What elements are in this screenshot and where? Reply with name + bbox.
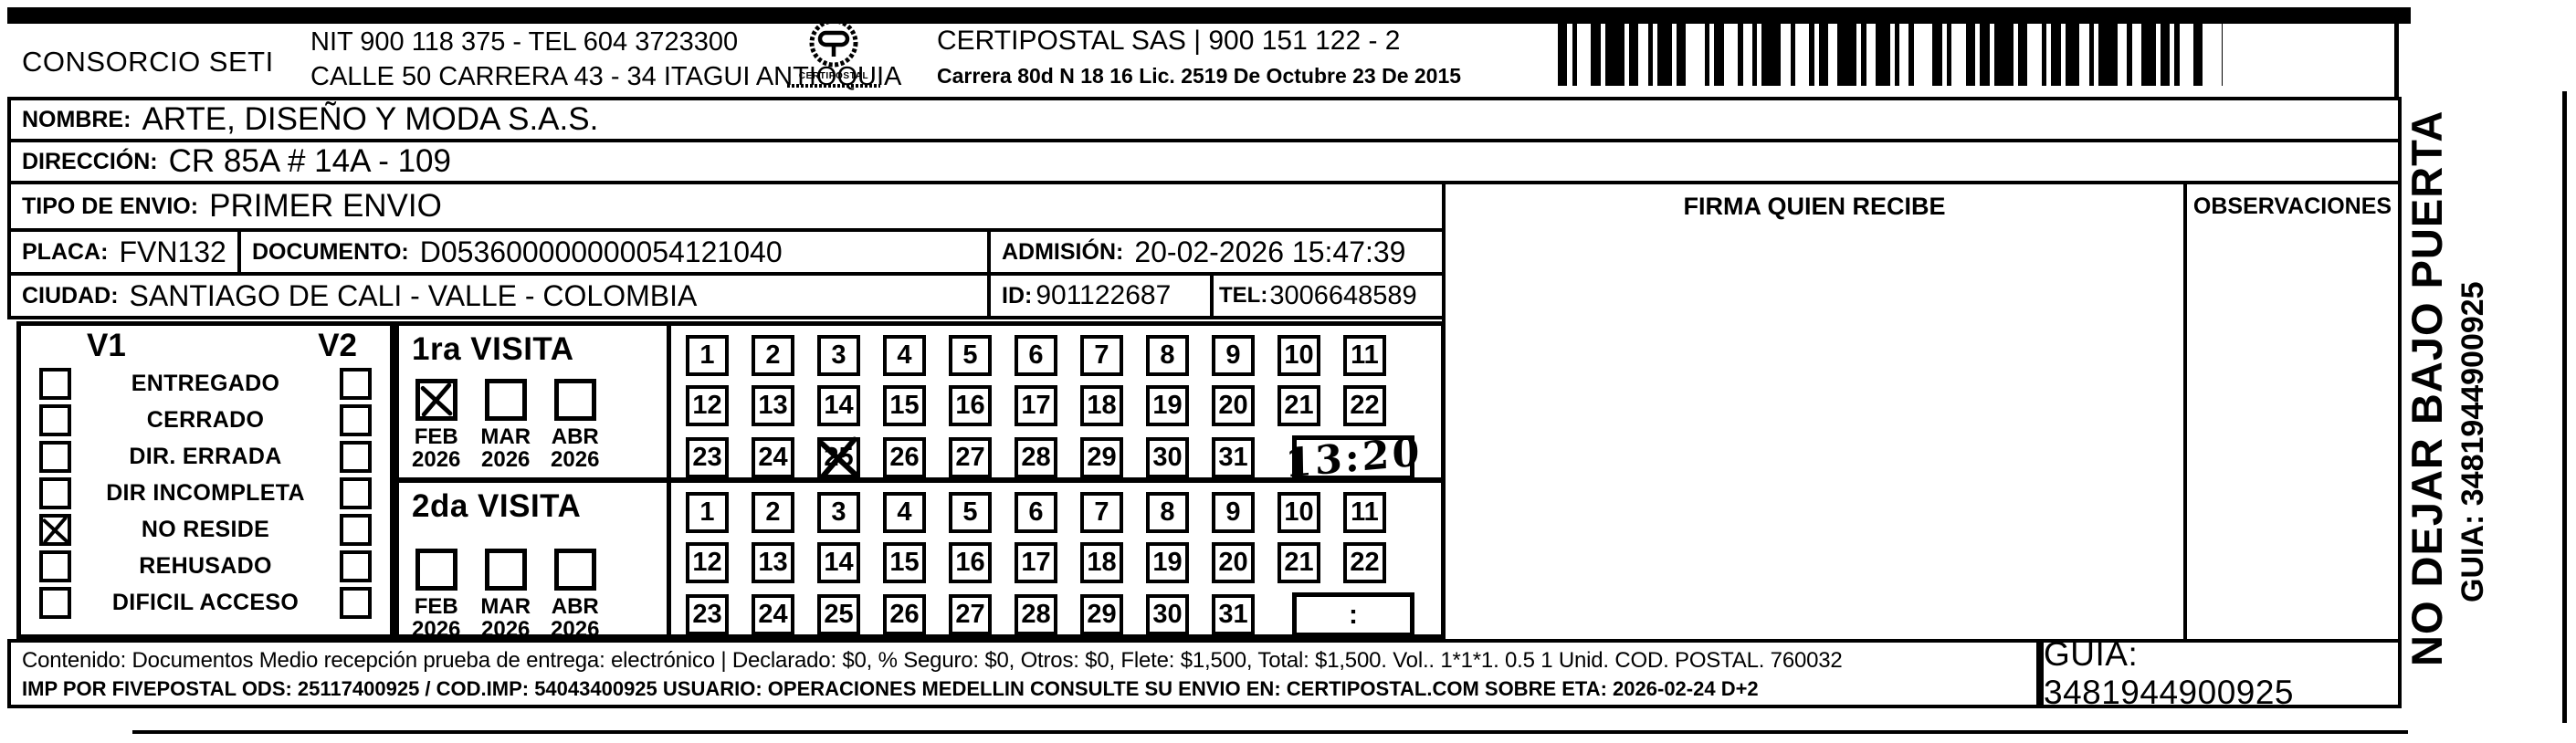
contenido-footer-box: Contenido: Documentos Medio recepción pr…: [7, 639, 2040, 708]
barcode-bar: [1591, 7, 1600, 86]
barcode-bar: [2193, 7, 2203, 86]
nit-phone-line: NIT 900 118 375 - TEL 604 3723300: [310, 27, 738, 58]
day-number: 31: [1218, 443, 1247, 473]
month-name: MAR: [480, 425, 531, 448]
day-number: 11: [1351, 497, 1379, 528]
certipostal-logo-icon: [807, 16, 860, 69]
admision-label: ADMISIÓN:: [1002, 239, 1123, 266]
day-cell-v2-17[interactable]: 17: [1015, 542, 1057, 583]
barcode-gap: [1577, 7, 1592, 86]
day-cell-v1-31[interactable]: 31: [1212, 437, 1255, 478]
status-panel: V1 V2 ENTREGADOCERRADODIR. ERRADADIR INC…: [16, 321, 394, 639]
day-number: 31: [1218, 600, 1247, 630]
direccion-row: DIRECCIÓN: CR 85A # 14A - 109: [7, 139, 2402, 184]
day-number: 16: [955, 548, 984, 578]
barcode-bar: [1966, 7, 1975, 86]
handwritten-x-mark: [415, 379, 457, 421]
barcode-gap: [2079, 7, 2088, 86]
barcode-bar: [2066, 7, 2080, 86]
nombre-row: NOMBRE: ARTE, DISEÑO Y MODA S.A.S.: [7, 97, 2402, 142]
visits-section: 1ra VISITA FEB2026MAR2026ABR2026 1234567…: [394, 321, 1446, 639]
barcode-bar: [2098, 7, 2118, 86]
barcode-bar: [1994, 7, 2013, 86]
second-visit-section: 2da VISITA FEB2026MAR2026ABR2026 1234567…: [399, 483, 1441, 634]
barcode-bar: [1558, 7, 1567, 86]
day-number: 13: [758, 548, 787, 578]
month-year: 2026: [480, 448, 531, 471]
day-cell-v1-22[interactable]: 22: [1343, 385, 1386, 426]
status-row-dir-errada: DIR. ERRADA: [32, 440, 379, 474]
day-cell-v2-1[interactable]: 1: [686, 492, 729, 533]
day-number: 1: [699, 497, 714, 528]
day-cell-v1-9[interactable]: 9: [1212, 335, 1255, 376]
month-checkbox-v2-abr[interactable]: [554, 549, 596, 591]
barcode-bar: [1876, 7, 1890, 86]
day-cell-v1-15[interactable]: 15: [883, 385, 926, 426]
day-number: 30: [1152, 600, 1182, 630]
tel-value: 3006648589: [1269, 281, 1416, 311]
barcode-gap: [1899, 7, 1908, 86]
day-cell-v1-20[interactable]: 20: [1212, 385, 1255, 426]
month-item-v1-abr: ABR2026: [551, 379, 599, 471]
day-number: 27: [955, 600, 984, 630]
day-number: 17: [1021, 548, 1050, 578]
day-number: 3: [831, 497, 846, 528]
barcode-gap: [1743, 7, 1752, 86]
day-cell-v1-4[interactable]: 4: [883, 335, 926, 376]
v1-checkbox-cerrado[interactable]: [39, 404, 71, 436]
day-cell-v2-3[interactable]: 3: [817, 492, 860, 533]
day-cell-v1-1[interactable]: 1: [686, 335, 729, 376]
day-number: 2: [765, 340, 780, 371]
day-number: 12: [692, 548, 721, 578]
day-cell-v2-26[interactable]: 26: [883, 594, 926, 635]
status-label-dir-incompleta: DIR INCOMPLETA: [71, 480, 340, 507]
status-row-entregado: ENTREGADO: [32, 367, 379, 401]
month-name: FEB: [412, 595, 460, 618]
contenido-line: Contenido: Documentos Medio recepción pr…: [22, 648, 2025, 674]
month-item-v2-feb: FEB2026: [412, 549, 460, 641]
day-number: 28: [1021, 443, 1050, 473]
v2-checkbox-cerrado[interactable]: [340, 404, 372, 436]
day-cell-v2-20[interactable]: 20: [1212, 542, 1255, 583]
day-number: 9: [1225, 340, 1240, 371]
day-row: 1213141516171819202122: [686, 542, 1441, 583]
day-number: 18: [1087, 548, 1116, 578]
day-cell-v1-2[interactable]: 2: [752, 335, 794, 376]
barcode-bar: [1819, 7, 1828, 86]
barcode-bar: [2051, 7, 2060, 86]
barcode-gap: [1724, 7, 1739, 86]
company-license-line: Carrera 80d N 18 16 Lic. 2519 De Octubre…: [937, 64, 1461, 89]
day-cell-v1-6[interactable]: 6: [1015, 335, 1057, 376]
guia-number-box: GUIA: 3481944900925: [2040, 639, 2402, 708]
barcode-gap: [1828, 7, 1837, 86]
day-number: 23: [692, 600, 721, 630]
day-cell-v1-18[interactable]: 18: [1080, 385, 1123, 426]
day-cell-v2-21[interactable]: 21: [1277, 542, 1320, 583]
day-cell-v2-19[interactable]: 19: [1146, 542, 1189, 583]
day-number: 24: [758, 600, 787, 630]
month-year: 2026: [551, 448, 599, 471]
ciudad-cell: CIUDAD: SANTIAGO DE CALI - VALLE - COLOM…: [7, 272, 991, 319]
day-row: 232425262728293031:: [686, 592, 1441, 637]
second-visit-month-checkboxes: FEB2026MAR2026ABR2026: [412, 549, 659, 641]
day-number: 15: [889, 548, 919, 578]
day-number: 24: [758, 443, 787, 473]
day-number: 14: [824, 548, 853, 578]
barcode-bar: [1629, 7, 1638, 86]
day-number: 29: [1087, 600, 1116, 630]
day-row: 23242526272829303113:20: [686, 435, 1441, 480]
day-cell-v1-27[interactable]: 27: [949, 437, 992, 478]
header-right-border: [2394, 7, 2399, 100]
day-number: 6: [1028, 497, 1043, 528]
day-cell-v1-26[interactable]: 26: [883, 437, 926, 478]
day-row: 1234567891011: [686, 492, 1441, 533]
time-box-v2[interactable]: :: [1292, 592, 1414, 637]
no-dejar-bajo-puerta-text: NO DEJAR BAJO PUERTA: [2402, 110, 2452, 666]
month-checkbox-v1-abr[interactable]: [554, 379, 596, 421]
day-cell-v1-30[interactable]: 30: [1146, 437, 1189, 478]
day-number: 22: [1350, 548, 1379, 578]
nombre-value: ARTE, DISEÑO Y MODA S.A.S.: [142, 101, 598, 138]
first-visit-section: 1ra VISITA FEB2026MAR2026ABR2026 1234567…: [399, 326, 1441, 477]
day-cell-v1-14[interactable]: 14: [817, 385, 860, 426]
day-cell-v1-8[interactable]: 8: [1146, 335, 1189, 376]
day-cell-v1-28[interactable]: 28: [1015, 437, 1057, 478]
month-name: ABR: [551, 425, 599, 448]
status-label-dir-errada: DIR. ERRADA: [71, 444, 340, 470]
side-guia-number: GUIA: 3481944900925: [2455, 281, 2491, 666]
barcode-gap: [1638, 7, 1647, 86]
day-cell-v2-31[interactable]: 31: [1212, 594, 1255, 635]
day-cell-v2-28[interactable]: 28: [1015, 594, 1057, 635]
barcode-gap: [2203, 7, 2222, 86]
time-box-v1[interactable]: 13:20: [1292, 435, 1414, 480]
v2-column-header: V2: [318, 328, 357, 364]
day-cell-v1-3[interactable]: 3: [817, 335, 860, 376]
barcode-gap: [1951, 7, 1966, 86]
logo-tagline-line: [787, 84, 880, 88]
day-number: 4: [897, 497, 911, 528]
day-cell-v2-13[interactable]: 13: [752, 542, 794, 583]
barcode-bar: [1837, 7, 1856, 86]
barcode-bar: [2161, 7, 2170, 86]
delivery-form-scan: CONSORCIO SETI NIT 900 118 375 - TEL 604…: [0, 0, 2576, 743]
day-number: 19: [1152, 548, 1182, 578]
day-cell-v2-23[interactable]: 23: [686, 594, 729, 635]
day-number: 10: [1284, 340, 1313, 371]
month-label-abr: ABR2026: [551, 425, 599, 471]
day-number: 3: [831, 340, 846, 371]
id-label: ID:: [1002, 283, 1032, 309]
month-item-v1-feb: FEB2026: [412, 379, 460, 471]
month-checkbox-v2-mar[interactable]: [485, 549, 527, 591]
day-number: 9: [1225, 497, 1240, 528]
month-label-feb: FEB2026: [412, 425, 460, 471]
signature-area[interactable]: [1442, 228, 2187, 641]
month-checkbox-v1-mar[interactable]: [485, 379, 527, 421]
day-row: 1234567891011: [686, 335, 1441, 376]
time-value-v2: :: [1349, 600, 1358, 631]
month-checkbox-v2-feb[interactable]: [415, 549, 457, 591]
month-label-feb: FEB2026: [412, 595, 460, 641]
v1-checkbox-entregado[interactable]: [39, 368, 71, 400]
day-number: 8: [1160, 340, 1174, 371]
day-number: 16: [955, 391, 984, 421]
page-right-edge-line: [2562, 91, 2567, 723]
day-number: 4: [897, 340, 911, 371]
status-panel-rows: ENTREGADOCERRADODIR. ERRADADIR INCOMPLET…: [32, 367, 379, 620]
month-year: 2026: [480, 618, 531, 641]
company-name-line: CERTIPOSTAL SAS | 900 151 122 - 2: [937, 26, 1401, 57]
day-number: 21: [1284, 548, 1313, 578]
month-name: MAR: [480, 595, 531, 618]
day-number: 7: [1094, 497, 1109, 528]
placa-cell: PLACA: FVN132: [7, 228, 241, 276]
page-bottom-edge-line: [132, 730, 2408, 734]
day-number: 27: [955, 443, 984, 473]
documento-label: DOCUMENTO:: [252, 239, 409, 266]
month-label-abr: ABR2026: [551, 595, 599, 641]
day-cell-v1-25[interactable]: 25: [817, 437, 860, 478]
id-value: 901122687: [1036, 280, 1171, 311]
side-note-rotated: NO DEJAR BAJO PUERTA GUIA: 3481944900925: [2402, 110, 2539, 666]
barcode-gap: [2132, 7, 2141, 86]
day-number: 23: [692, 443, 721, 473]
day-cell-v1-7[interactable]: 7: [1080, 335, 1123, 376]
day-number: 2: [765, 497, 780, 528]
firma-quien-recibe-header: FIRMA QUIEN RECIBE: [1442, 181, 2187, 232]
ciudad-value: SANTIAGO DE CALI - VALLE - COLOMBIA: [130, 279, 698, 313]
month-item-v2-mar: MAR2026: [480, 549, 531, 641]
handwritten-x-mark: [38, 513, 72, 547]
barcode: [1558, 7, 2223, 86]
tel-cell: TEL: 3006648589: [1210, 272, 1446, 319]
status-row-dificil-acceso: DIFICIL ACCESO: [32, 586, 379, 620]
barcode-gap: [2027, 7, 2042, 86]
barcode-bar: [2141, 7, 2156, 86]
day-cell-v2-7[interactable]: 7: [1080, 492, 1123, 533]
day-cell-v1-12[interactable]: 12: [686, 385, 729, 426]
direccion-label: DIRECCIÓN:: [22, 149, 158, 175]
barcode-bar: [2018, 7, 2027, 86]
imp-usuario-line: IMP POR FIVEPOSTAL ODS: 25117400925 / CO…: [22, 677, 2025, 701]
day-number: 13: [758, 391, 787, 421]
day-cell-v2-24[interactable]: 24: [752, 594, 794, 635]
day-number: 15: [889, 391, 919, 421]
barcode-bar: [1980, 7, 1989, 86]
barcode-bar: [1714, 7, 1723, 86]
status-label-no-reside: NO RESIDE: [71, 517, 340, 543]
day-number: 1: [699, 340, 714, 371]
observaciones-area[interactable]: [2187, 228, 2402, 641]
day-cell-v2-22[interactable]: 22: [1343, 542, 1386, 583]
month-item-v1-mar: MAR2026: [480, 379, 531, 471]
v1-checkbox-dir-incompleta[interactable]: [39, 477, 71, 509]
second-visit-day-grid: 1234567891011121314151617181920212223242…: [671, 483, 1441, 634]
first-visit-day-grid: 1234567891011121314151617181920212223242…: [671, 326, 1441, 477]
second-visit-months-panel: 2da VISITA FEB2026MAR2026ABR2026: [399, 483, 671, 634]
day-cell-v1-29[interactable]: 29: [1080, 437, 1123, 478]
v1-checkbox-rehusado[interactable]: [39, 550, 71, 582]
month-name: ABR: [551, 595, 599, 618]
barcode-gap: [2118, 7, 2127, 86]
month-checkbox-v1-feb[interactable]: [415, 379, 457, 421]
v2-checkbox-no-reside[interactable]: [340, 514, 372, 546]
nombre-label: NOMBRE:: [22, 107, 131, 133]
day-number: 5: [962, 497, 977, 528]
status-label-entregado: ENTREGADO: [71, 371, 340, 397]
status-row-rehusado: REHUSADO: [32, 549, 379, 583]
v2-checkbox-dir-errada[interactable]: [340, 441, 372, 473]
day-number: 22: [1350, 391, 1379, 421]
tipo-envio-row: TIPO DE ENVIO: PRIMER ENVIO: [7, 181, 1446, 232]
day-cell-v2-30[interactable]: 30: [1146, 594, 1189, 635]
time-value-v1: 13:20: [1285, 452, 1422, 464]
day-number: 30: [1152, 443, 1182, 473]
placa-label: PLACA:: [22, 239, 108, 266]
barcode-gap: [1795, 7, 1810, 86]
documento-cell: DOCUMENTO: D053600000000054121040: [237, 228, 991, 276]
day-cell-v2-2[interactable]: 2: [752, 492, 794, 533]
day-cell-v2-5[interactable]: 5: [949, 492, 992, 533]
day-number: 18: [1087, 391, 1116, 421]
v2-checkbox-dir-incompleta[interactable]: [340, 477, 372, 509]
barcode-bar: [1605, 7, 1624, 86]
observaciones-header: OBSERVACIONES: [2183, 181, 2402, 232]
day-cell-v1-16[interactable]: 16: [949, 385, 992, 426]
day-number: 7: [1094, 340, 1109, 371]
day-cell-v1-5[interactable]: 5: [949, 335, 992, 376]
day-number: 6: [1028, 340, 1043, 371]
day-number: 28: [1021, 600, 1050, 630]
direccion-value: CR 85A # 14A - 109: [169, 143, 451, 180]
v1-checkbox-dificil-acceso[interactable]: [39, 587, 71, 619]
documento-value: D053600000000054121040: [420, 235, 783, 269]
day-cell-v2-16[interactable]: 16: [949, 542, 992, 583]
barcode-bar: [2222, 7, 2223, 86]
status-panel-header: V1 V2: [32, 328, 379, 364]
day-number: 17: [1021, 391, 1050, 421]
month-year: 2026: [551, 618, 599, 641]
day-number: 25: [824, 443, 853, 473]
barcode-bar: [1932, 7, 1941, 86]
day-cell-v1-23[interactable]: 23: [686, 437, 729, 478]
v2-checkbox-rehusado[interactable]: [340, 550, 372, 582]
day-number: 26: [889, 600, 919, 630]
barcode-bar: [1677, 7, 1686, 86]
day-cell-v1-17[interactable]: 17: [1015, 385, 1057, 426]
tipo-envio-value: PRIMER ENVIO: [209, 188, 442, 225]
tipo-envio-label: TIPO DE ENVIO:: [22, 194, 198, 220]
day-cell-v2-12[interactable]: 12: [686, 542, 729, 583]
barcode-gap: [1914, 7, 1933, 86]
day-cell-v2-14[interactable]: 14: [817, 542, 860, 583]
day-cell-v2-15[interactable]: 15: [883, 542, 926, 583]
status-label-cerrado: CERRADO: [71, 407, 340, 434]
v1-checkbox-no-reside[interactable]: [39, 514, 71, 546]
day-cell-v2-6[interactable]: 6: [1015, 492, 1057, 533]
admision-value: 20-02-2026 15:47:39: [1134, 235, 1405, 269]
day-cell-v2-11[interactable]: 11: [1343, 492, 1386, 533]
day-cell-v1-13[interactable]: 13: [752, 385, 794, 426]
consorcio-name: CONSORCIO SETI: [22, 46, 274, 78]
barcode-gap: [1686, 7, 1705, 86]
barcode-gap: [1781, 7, 1790, 86]
day-number: 25: [824, 600, 853, 630]
barcode-gap: [1866, 7, 1876, 86]
v2-checkbox-dificil-acceso[interactable]: [340, 587, 372, 619]
status-row-dir-incompleta: DIR INCOMPLETA: [32, 476, 379, 510]
barcode-bar: [1657, 7, 1672, 86]
day-cell-v2-4[interactable]: 4: [883, 492, 926, 533]
day-cell-v1-24[interactable]: 24: [752, 437, 794, 478]
id-cell: ID: 901122687: [987, 272, 1214, 319]
day-cell-v1-11[interactable]: 11: [1343, 335, 1386, 376]
month-name: FEB: [412, 425, 460, 448]
day-number: 20: [1218, 391, 1247, 421]
status-label-dificil-acceso: DIFICIL ACCESO: [71, 590, 340, 616]
day-cell-v2-18[interactable]: 18: [1080, 542, 1123, 583]
day-cell-v2-9[interactable]: 9: [1212, 492, 1255, 533]
day-number: 8: [1160, 497, 1174, 528]
day-cell-v2-27[interactable]: 27: [949, 594, 992, 635]
day-number: 26: [889, 443, 919, 473]
status-label-rehusado: REHUSADO: [71, 553, 340, 580]
month-year: 2026: [412, 448, 460, 471]
month-label-mar: MAR2026: [480, 595, 531, 641]
day-cell-v1-21[interactable]: 21: [1277, 385, 1320, 426]
v1-column-header: V1: [87, 328, 126, 364]
day-number: 14: [824, 391, 853, 421]
day-number: 10: [1284, 497, 1313, 528]
day-cell-v1-10[interactable]: 10: [1277, 335, 1320, 376]
status-row-cerrado: CERRADO: [32, 403, 379, 437]
day-number: 11: [1351, 340, 1379, 371]
barcode-bar: [1761, 7, 1781, 86]
tel-label: TEL:: [1219, 283, 1267, 309]
month-item-v2-abr: ABR2026: [551, 549, 599, 641]
day-number: 19: [1152, 391, 1182, 421]
first-visit-month-checkboxes: FEB2026MAR2026ABR2026: [412, 379, 659, 471]
day-cell-v2-10[interactable]: 10: [1277, 492, 1320, 533]
ciudad-label: CIUDAD:: [22, 283, 119, 309]
day-number: 21: [1284, 391, 1313, 421]
day-number: 12: [692, 391, 721, 421]
day-cell-v1-19[interactable]: 19: [1146, 385, 1189, 426]
day-cell-v2-8[interactable]: 8: [1146, 492, 1189, 533]
day-number: 29: [1087, 443, 1116, 473]
day-number: 20: [1218, 548, 1247, 578]
v1-checkbox-dir-errada[interactable]: [39, 441, 71, 473]
month-year: 2026: [412, 618, 460, 641]
day-cell-v2-29[interactable]: 29: [1080, 594, 1123, 635]
day-number: 5: [962, 340, 977, 371]
admision-cell: ADMISIÓN: 20-02-2026 15:47:39: [987, 228, 1446, 276]
month-label-mar: MAR2026: [480, 425, 531, 471]
status-row-no-reside: NO RESIDE: [32, 513, 379, 547]
day-cell-v2-25[interactable]: 25: [817, 594, 860, 635]
certipostal-logo-text: CERTIPOSTAL: [782, 71, 886, 81]
barcode-gap: [2180, 7, 2194, 86]
first-visit-months-panel: 1ra VISITA FEB2026MAR2026ABR2026: [399, 326, 671, 477]
day-row: 1213141516171819202122: [686, 385, 1441, 426]
placa-value: FVN132: [119, 235, 226, 269]
v2-checkbox-entregado[interactable]: [340, 368, 372, 400]
second-visit-title: 2da VISITA: [412, 488, 659, 525]
